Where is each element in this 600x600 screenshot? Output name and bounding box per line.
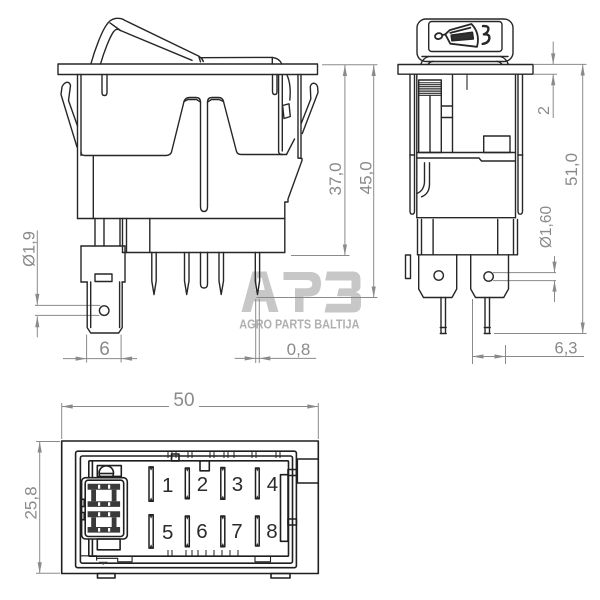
- svg-text:5: 5: [162, 521, 173, 544]
- svg-text:51,0: 51,0: [562, 153, 581, 186]
- svg-text:AGRO PARTS BALTIJA: AGRO PARTS BALTIJA: [239, 317, 360, 332]
- svg-text:6: 6: [99, 339, 110, 360]
- svg-text:2: 2: [197, 473, 208, 496]
- svg-text:2: 2: [536, 106, 553, 115]
- svg-text:7: 7: [231, 520, 242, 543]
- svg-text:6,3: 6,3: [555, 340, 578, 358]
- svg-text:8: 8: [266, 520, 277, 543]
- svg-text:25,8: 25,8: [21, 486, 40, 519]
- svg-text:1: 1: [162, 474, 173, 497]
- svg-text:Ø1,9: Ø1,9: [20, 231, 38, 267]
- svg-text:4: 4: [267, 473, 278, 496]
- svg-text:45,0: 45,0: [357, 161, 376, 194]
- svg-text:0,8: 0,8: [287, 340, 311, 359]
- svg-text:Ø1,60: Ø1,60: [538, 206, 555, 249]
- svg-text:3: 3: [232, 473, 243, 496]
- svg-text:37,0: 37,0: [326, 162, 345, 195]
- svg-text:6: 6: [196, 520, 207, 543]
- svg-text:50: 50: [173, 390, 194, 411]
